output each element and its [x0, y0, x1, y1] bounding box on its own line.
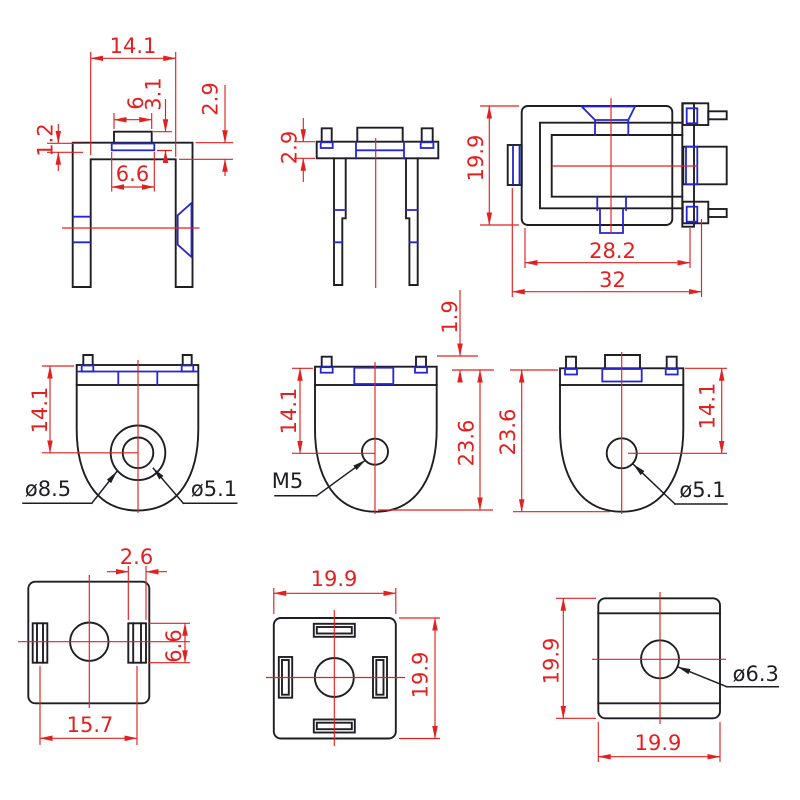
pins: [322, 357, 426, 367]
view-side-top-middle: 2.9: [278, 118, 439, 288]
view-back-mid-left: 14.1 ø8.5 ø5.1: [23, 355, 237, 513]
dimension-lines: [292, 290, 494, 514]
dim-height: 19.9: [409, 652, 433, 699]
label-hole-diameter: ø5.1: [679, 478, 725, 502]
label-inner-diameter: ø5.1: [191, 477, 237, 501]
dim-slot-pitch: 15.7: [67, 713, 114, 737]
view-front-top-left: 14.1 6 3.1 2.9 1.2 6.6: [34, 34, 234, 287]
top-block: [114, 132, 152, 143]
part-outline: [317, 128, 439, 285]
bottom-finger: [708, 209, 726, 217]
part-outline: [598, 598, 720, 718]
countersink-profile: [178, 203, 192, 257]
technical-drawing: 14.1 6 3.1 2.9 1.2 6.6 2.9: [0, 0, 800, 800]
left-leg-ticks: [74, 217, 91, 243]
edge-lines: [598, 613, 720, 703]
right-pin: [422, 128, 433, 141]
label-hole-diameter: ø6.3: [733, 662, 779, 686]
view-bottom-middle: 19.9 19.9: [266, 567, 440, 746]
dimension-lines: [47, 52, 233, 228]
feature-lines: [321, 142, 434, 242]
right-slot: [128, 623, 146, 662]
dim-hole-height: 14.1: [696, 383, 720, 430]
dim-tab-height: 1.9: [438, 300, 462, 333]
dim-total-height: 23.6: [496, 409, 520, 456]
drawing-canvas: 14.1 6 3.1 2.9 1.2 6.6 2.9: [0, 0, 800, 800]
view-back-mid-center: 1.9 14.1 23.6 M5: [272, 290, 494, 514]
center-block: [357, 128, 402, 142]
dim-step-height: 3.1: [142, 77, 166, 110]
dim-width: 19.9: [635, 731, 682, 755]
base-square: [598, 598, 720, 718]
dim-hole-height: 14.1: [28, 387, 52, 434]
dim-height: 19.9: [540, 638, 564, 685]
dim-slot-width: 6.6: [116, 162, 149, 186]
countersink: [582, 107, 635, 136]
view-bottom-left: 2.6 6.6 15.7: [18, 545, 190, 745]
dim-total-height: 23.6: [455, 420, 479, 467]
dim-outer-width: 32: [599, 268, 626, 292]
centerlines: [552, 98, 698, 233]
bottom-hole: [597, 197, 626, 233]
dim-slot-height: 6.6: [162, 629, 186, 662]
dim-plate-thickness: 2.9: [278, 131, 302, 164]
label-outer-diameter: ø8.5: [25, 477, 71, 501]
dim-height: 19.9: [464, 135, 488, 182]
center-block: [605, 355, 640, 368]
top-finger: [708, 111, 726, 119]
view-bottom-right: 19.9 19.9 ø6.3: [540, 592, 779, 762]
view-side-top-right: 19.9 28.2 32: [464, 98, 727, 297]
right-leg: [406, 158, 418, 285]
dim-slot-width: 2.6: [120, 545, 153, 569]
view-front-mid-right: 23.6 14.1 ø5.1: [496, 352, 727, 514]
left-leg: [334, 158, 346, 285]
dim-top-width: 14.1: [110, 34, 157, 58]
feature-lines: [321, 367, 427, 384]
dim-width: 19.9: [311, 567, 358, 591]
dim-lip: 1.2: [34, 123, 58, 156]
dim-plate-thickness: 2.9: [199, 82, 223, 115]
left-slot: [33, 623, 48, 662]
label-thread: M5: [272, 469, 303, 493]
left-pin: [322, 128, 332, 141]
dim-inner-width: 28.2: [589, 239, 636, 263]
part-outline: [315, 357, 437, 512]
part-outline: [508, 103, 727, 226]
body: [315, 385, 437, 512]
insert-seat: [112, 144, 155, 151]
dim-hole-height: 14.1: [277, 388, 301, 435]
centerlines: [266, 610, 405, 746]
